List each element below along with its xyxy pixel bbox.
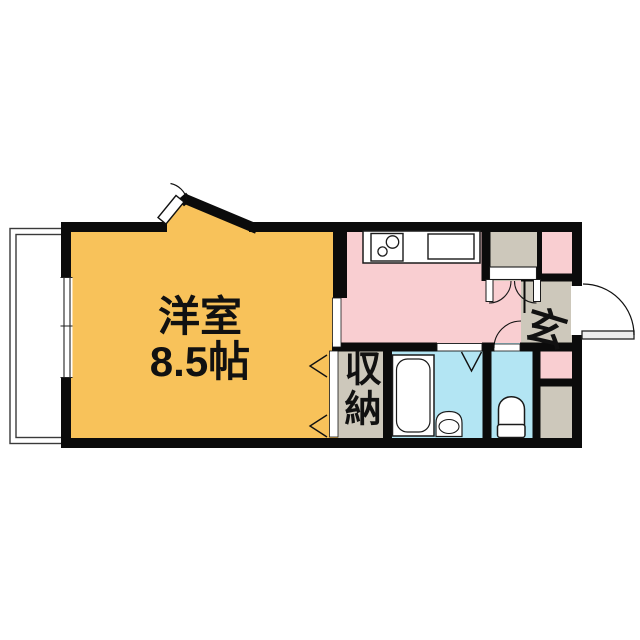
bathtub-icon <box>393 355 435 436</box>
western-room-name: 洋室 <box>85 294 315 339</box>
stove-icon <box>371 234 403 262</box>
floor-plan-page: 洋室 8.5帖 収納 玄 <box>0 0 640 640</box>
opening-window <box>61 277 73 378</box>
basin-icon <box>436 412 462 437</box>
opening-bathroom <box>437 344 482 352</box>
opening-room-hall <box>333 298 342 347</box>
opening-storage <box>330 351 339 437</box>
door-arc-icon <box>583 284 634 335</box>
western-room-size: 8.5帖 <box>85 339 315 384</box>
toilet-icon <box>498 397 526 438</box>
label-storage: 収納 <box>339 349 379 445</box>
utility-corner <box>536 382 577 443</box>
entrance-door <box>582 284 634 339</box>
label-western-room: 洋室 8.5帖 <box>85 294 315 384</box>
kitchen-counter <box>363 231 480 263</box>
sink-icon <box>428 234 474 259</box>
door-leaf-icon <box>582 331 634 339</box>
stove-burner-icon <box>378 247 387 256</box>
balcony <box>10 229 62 444</box>
stove-burner-icon <box>386 236 398 248</box>
